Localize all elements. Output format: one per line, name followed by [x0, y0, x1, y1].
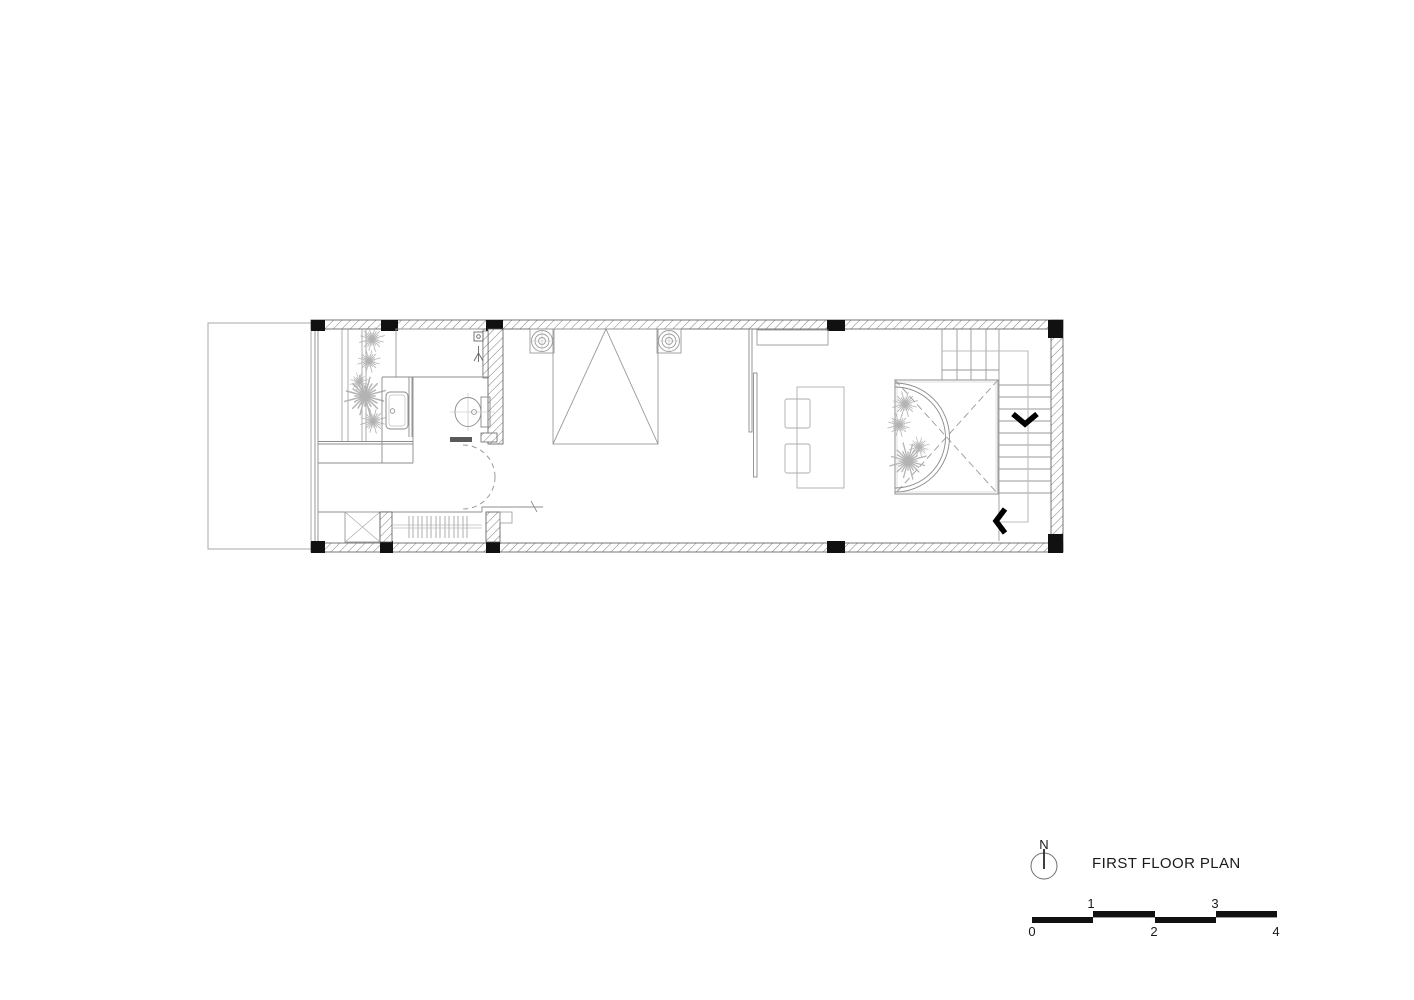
bottom-wall [311, 543, 1063, 552]
scale-segment [1155, 917, 1216, 923]
bathroom-door-wall [450, 437, 472, 442]
drawing-title: FIRST FLOOR PLAN [1092, 855, 1241, 872]
chair [785, 399, 810, 428]
drain-icon [390, 409, 395, 414]
north-compass-icon [1031, 849, 1057, 879]
scale-label-3: 3 [1211, 897, 1218, 910]
stair-handrail [942, 351, 1028, 522]
void-trees [887, 391, 929, 479]
top-wall [311, 320, 1063, 329]
planter-arc [895, 383, 949, 492]
void-skylight [887, 380, 998, 494]
scale-label-2: 2 [1150, 925, 1157, 938]
cabinet [757, 330, 828, 345]
scale-segment [1216, 911, 1277, 917]
scale-segment [1032, 917, 1093, 923]
structural-columns [311, 320, 1063, 553]
stair-arrow-down-icon [1013, 414, 1037, 424]
dining-set [785, 387, 844, 488]
scale-bar [1032, 911, 1277, 923]
right-wall [1051, 320, 1063, 552]
first-floor-plan-drawing [0, 0, 1414, 1000]
floor-plan-sheet: N FIRST FLOOR PLAN 0 1 2 3 4 [0, 0, 1414, 1000]
vanity-counter [382, 377, 413, 463]
scale-segment [1093, 911, 1155, 917]
chair [785, 444, 810, 473]
left-facade [315, 331, 318, 541]
service-strip [318, 501, 543, 543]
shower-head-icon [474, 332, 483, 362]
bathroom [382, 329, 503, 444]
north-label: N [1039, 837, 1048, 852]
bed [553, 329, 658, 444]
upper-flight-treads [942, 329, 999, 380]
shower-wall-stub [483, 331, 488, 378]
tv-panel [754, 373, 758, 477]
staircase [942, 329, 1051, 541]
scale-label-4: 4 [1272, 925, 1279, 938]
partition-wall [749, 329, 752, 432]
exterior-walls [311, 320, 1063, 552]
bathroom-left-wall [409, 377, 412, 437]
scale-label-1: 1 [1087, 897, 1094, 910]
bench [318, 442, 413, 464]
louver-grille [409, 516, 467, 538]
door-swing [463, 445, 495, 509]
planter-trees [344, 326, 386, 433]
stair-arrow-left-icon [996, 509, 1005, 533]
lower-flight-treads [999, 385, 1051, 493]
front-yard-outline [208, 323, 311, 549]
wardrobe [396, 329, 483, 377]
scale-label-0: 0 [1028, 925, 1035, 938]
